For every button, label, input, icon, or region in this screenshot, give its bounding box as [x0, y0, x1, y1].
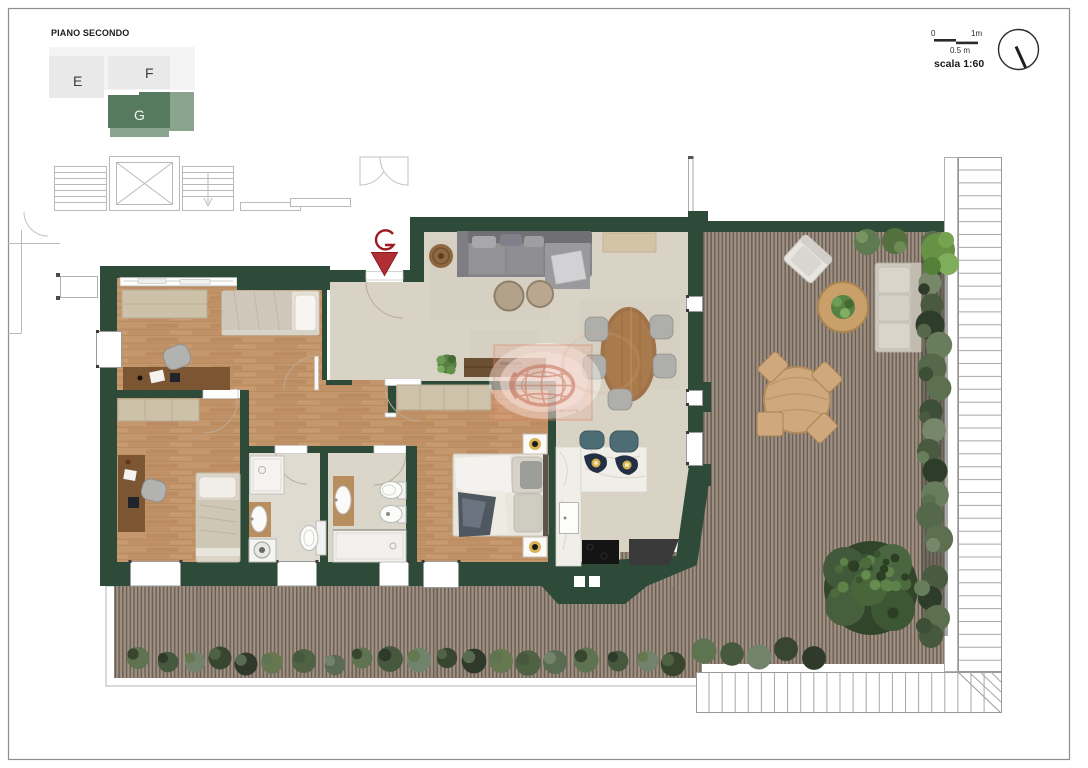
svg-text:0: 0	[931, 29, 936, 38]
svg-text:G: G	[134, 107, 145, 123]
svg-text:scala 1:60: scala 1:60	[934, 58, 984, 70]
svg-text:E: E	[73, 73, 82, 89]
svg-text:1m: 1m	[971, 29, 982, 38]
svg-text:0.5 m: 0.5 m	[950, 46, 970, 55]
svg-text:IMMOBILIARE: IMMOBILIARE	[547, 408, 579, 413]
svg-text:F: F	[145, 65, 154, 81]
svg-text:PIANO SECONDO: PIANO SECONDO	[51, 28, 129, 38]
